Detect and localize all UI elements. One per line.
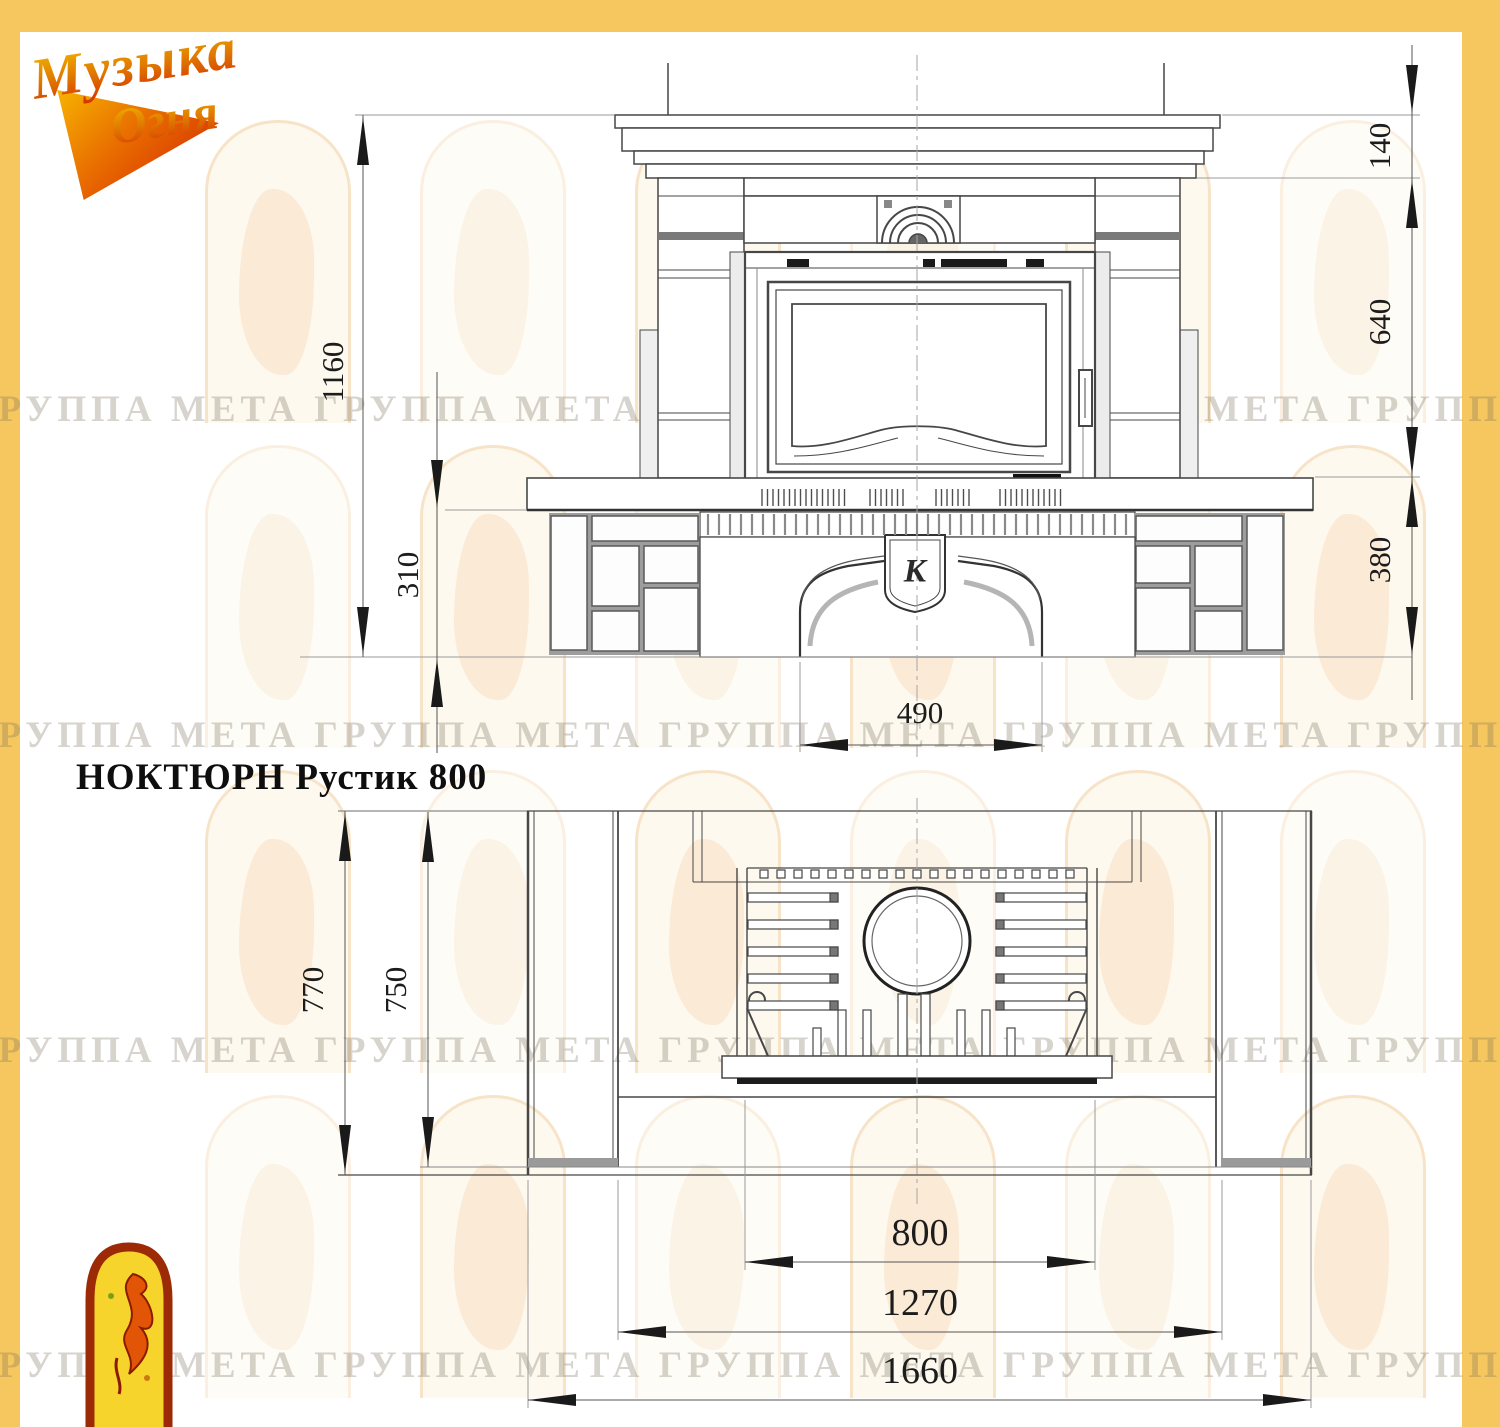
dim-label-total-height: 1160 (315, 342, 351, 403)
base-stones-left (549, 513, 700, 655)
dim-label-base-height: 380 (1362, 537, 1398, 584)
page-title: НОКТЮРН Рустик 800 (76, 756, 487, 799)
dim-label-body-height: 640 (1362, 299, 1398, 346)
keystone-letter: К (904, 554, 926, 591)
dim-label-mantel-height: 140 (1362, 123, 1398, 170)
dim-label-inner-depth: 750 (378, 967, 414, 1014)
dim-label-hearth-clearance: 310 (390, 552, 426, 599)
front-view-group (300, 55, 1412, 757)
technical-drawing (0, 0, 1500, 1427)
brand-logo: Музыка Огня (22, 28, 267, 193)
dim-label-total-depth: 770 (295, 967, 331, 1014)
plan-teeth (760, 870, 1074, 878)
dim-label-firebox-width: 800 (892, 1211, 949, 1255)
drawing-sheet: ГРУППА МЕТА ГРУППА МЕТА ГРУППА МЕТА ГРУП… (0, 0, 1500, 1427)
dim-label-total-width: 1660 (882, 1349, 958, 1393)
dim-label-base-opening: 490 (897, 695, 944, 731)
base-stones-right (1134, 513, 1285, 655)
arch-flame-emblem (83, 1238, 175, 1427)
dim-label-body-width: 1270 (882, 1281, 958, 1325)
arch-flame-icon (83, 1238, 175, 1427)
